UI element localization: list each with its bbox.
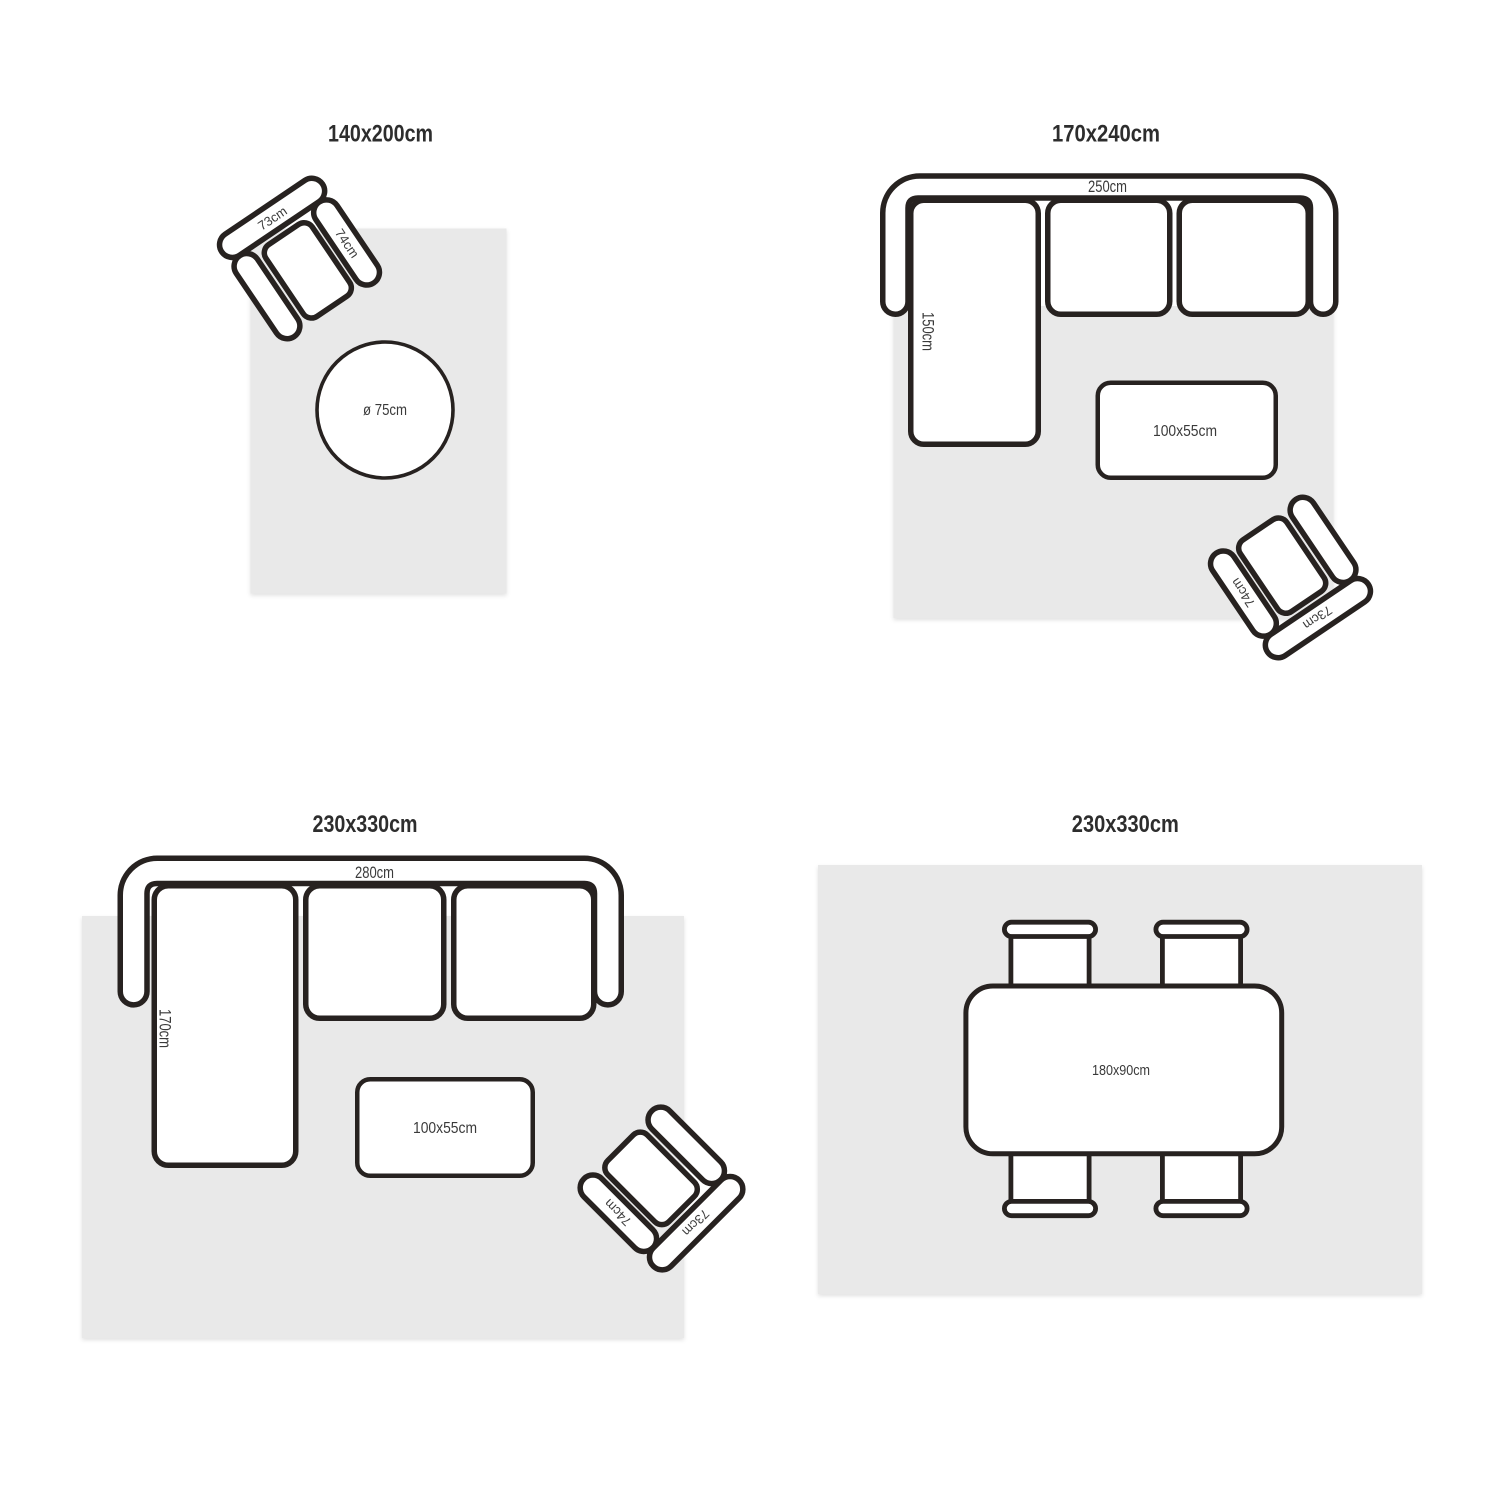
- svg-text:100x55cm: 100x55cm: [1153, 423, 1217, 440]
- svg-text:170cm: 170cm: [156, 1009, 175, 1048]
- svg-text:280cm: 280cm: [355, 863, 394, 882]
- svg-text:230x330cm: 230x330cm: [1072, 811, 1179, 838]
- svg-text:150cm: 150cm: [919, 312, 938, 351]
- svg-text:140x200cm: 140x200cm: [328, 121, 433, 148]
- svg-text:250cm: 250cm: [1088, 177, 1127, 196]
- svg-text:180x90cm: 180x90cm: [1092, 1063, 1150, 1079]
- svg-text:170x240cm: 170x240cm: [1052, 121, 1160, 148]
- svg-text:100x55cm: 100x55cm: [413, 1120, 477, 1137]
- svg-text:ø 75cm: ø 75cm: [363, 402, 407, 419]
- svg-text:230x330cm: 230x330cm: [313, 811, 418, 838]
